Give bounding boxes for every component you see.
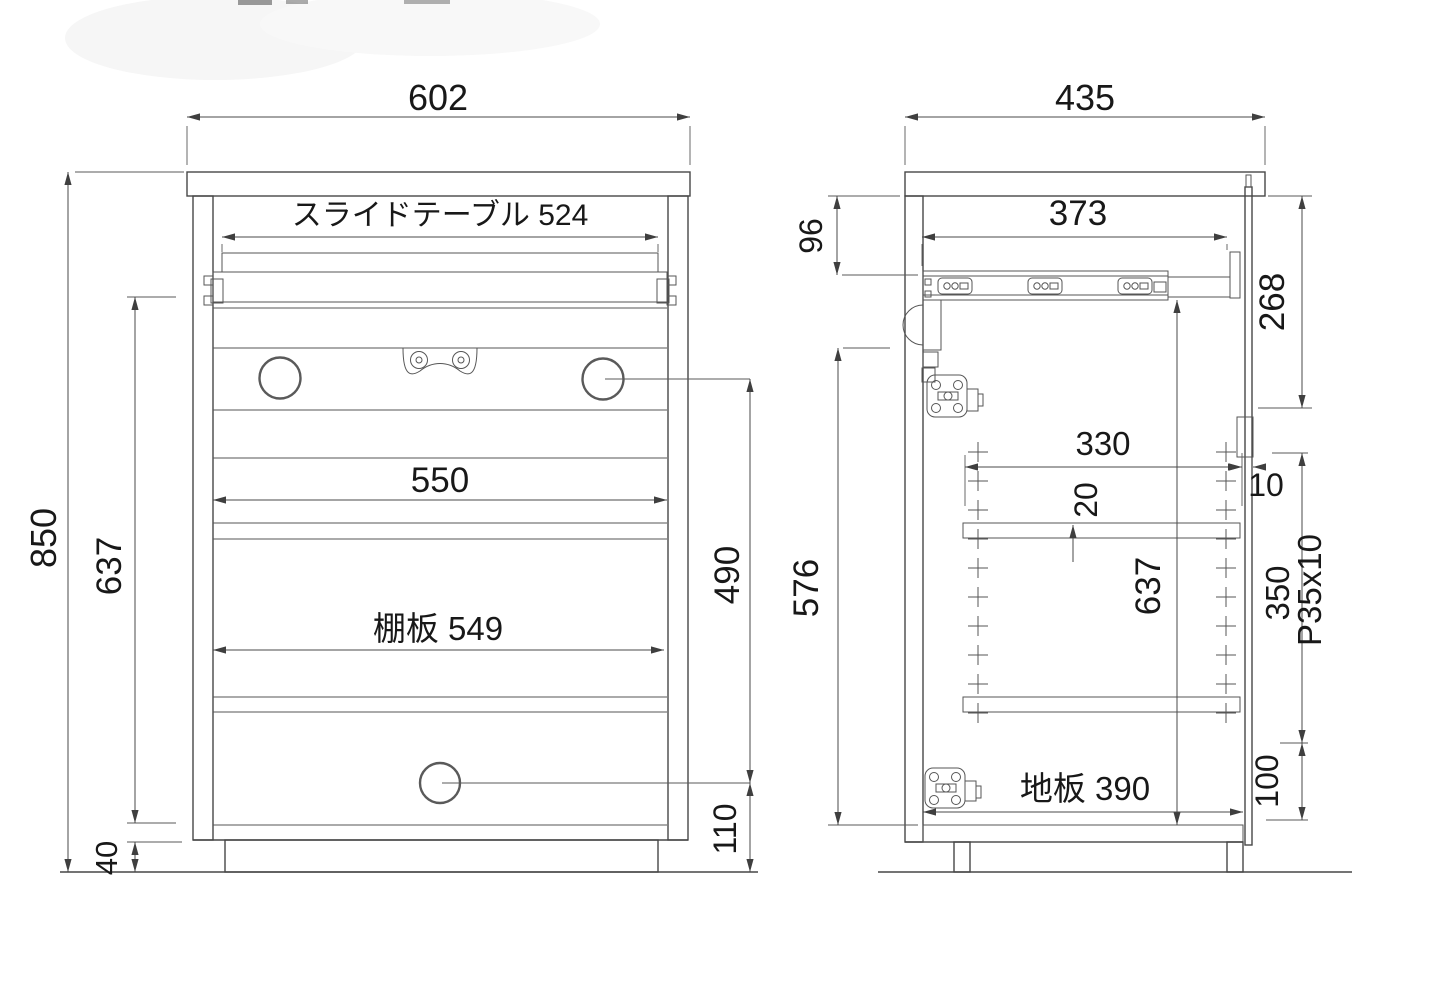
dim-side-top-gap: 96 <box>793 218 829 254</box>
side-shelf2 <box>963 697 1240 712</box>
pin-hole-column-left <box>968 442 988 723</box>
front-right-side-panel <box>668 196 688 840</box>
pin-hole-column-right <box>1216 442 1236 723</box>
dim-front-width: 602 <box>408 77 468 118</box>
dim-side-shelf-depth: 330 <box>1075 425 1130 462</box>
dim-side-front-gap: 10 <box>1248 467 1284 503</box>
dim-front-hole-spacing: 490 <box>708 546 747 604</box>
side-shelves <box>963 523 1240 712</box>
front-slide-table <box>204 253 676 308</box>
dim-side-depth: 435 <box>1055 77 1115 118</box>
dim-side-pin-pitch: P35x10 <box>1291 534 1328 646</box>
dim-front-shelf: 棚板 549 <box>373 610 503 647</box>
side-bottom-board <box>923 825 1243 842</box>
side-shelf1 <box>963 523 1240 538</box>
hinge-bottom <box>925 768 981 808</box>
front-dimensions: 602 スライドテーブル 524 550 棚板 549 850 637 40 4… <box>23 77 750 875</box>
side-door-top-tab <box>1246 175 1251 187</box>
front-kickboard <box>225 840 658 872</box>
dim-side-bottom: 100 <box>1249 754 1285 807</box>
dim-front-inner-width: 550 <box>411 461 469 500</box>
cable-hole-left <box>260 358 301 399</box>
dim-front-inner-height: 637 <box>90 537 129 595</box>
side-view: 435 373 96 268 330 10 20 637 <box>787 77 1352 872</box>
side-back-panel <box>905 196 923 842</box>
front-center-bracket <box>403 348 477 374</box>
dim-front-height: 850 <box>23 508 64 568</box>
background-artifacts <box>65 0 600 80</box>
front-interior-lines <box>213 348 667 712</box>
dim-front-hole-floor: 110 <box>707 803 743 854</box>
side-wall-bracket <box>903 300 941 382</box>
front-view: 602 スライドテーブル 524 550 棚板 549 850 637 40 4… <box>23 77 758 875</box>
rail-end-plate <box>1230 252 1240 298</box>
dim-side-shelf-thickness: 20 <box>1068 482 1104 518</box>
side-dimensions: 435 373 96 268 330 10 20 637 <box>787 77 1328 825</box>
dim-side-rail: 373 <box>1049 194 1107 233</box>
dim-side-upper: 268 <box>1253 273 1292 331</box>
front-cabinet-outline <box>60 172 758 872</box>
rail-arm <box>1168 277 1230 297</box>
side-foot-right <box>1227 842 1243 872</box>
front-top-panel <box>187 172 690 196</box>
side-top-panel <box>905 172 1265 196</box>
side-foot-left <box>954 842 970 872</box>
front-holes <box>260 358 624 804</box>
dim-side-back-height: 576 <box>787 559 826 617</box>
dim-front-slide-table: スライドテーブル 524 <box>292 199 589 232</box>
technical-drawing: 602 スライドテーブル 524 550 棚板 549 850 637 40 4… <box>0 0 1440 996</box>
rail-slider-unit <box>938 278 972 294</box>
dim-front-base: 40 <box>89 841 124 875</box>
rail-slider-unit <box>1028 278 1062 294</box>
dim-side-inner-height: 637 <box>1129 557 1168 615</box>
front-left-side-panel <box>193 196 213 840</box>
dim-side-bottom-board: 地板 390 <box>1020 770 1150 807</box>
rail-slider-unit <box>1118 278 1152 294</box>
side-door-panel <box>1245 187 1252 845</box>
side-slide-rail <box>923 252 1240 300</box>
